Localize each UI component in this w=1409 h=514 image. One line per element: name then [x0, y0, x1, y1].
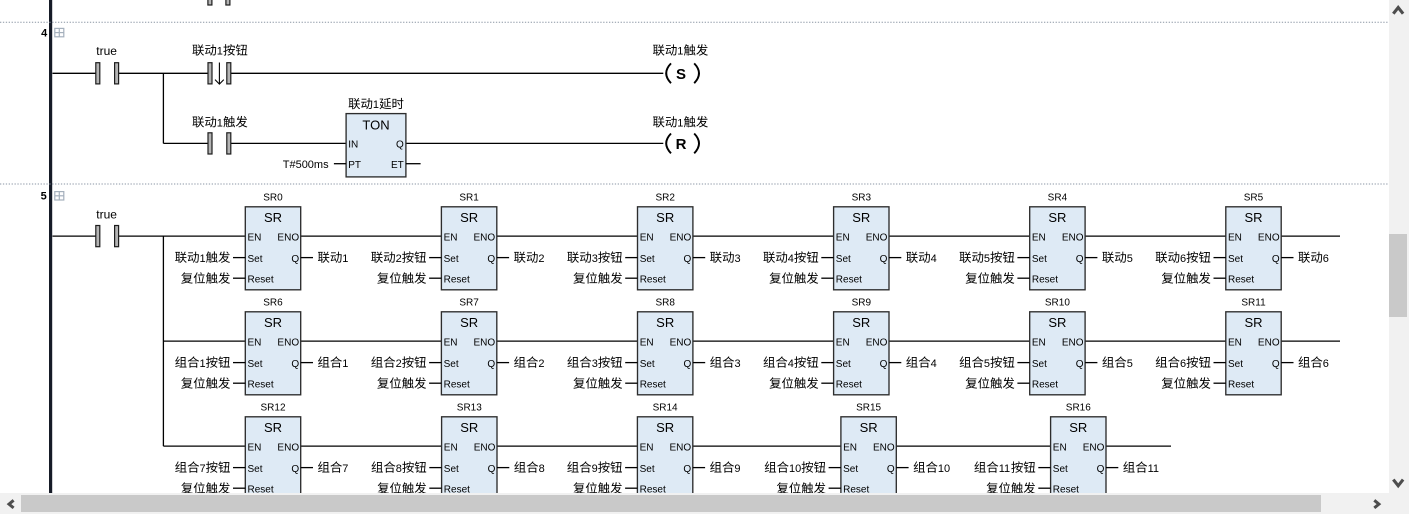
svg-text:Set: Set [248, 359, 263, 370]
svg-text:SR10: SR10 [1045, 298, 1070, 309]
svg-text:Set: Set [444, 359, 459, 370]
svg-text:Reset: Reset [1228, 380, 1254, 391]
svg-text:Q: Q [1272, 254, 1280, 265]
svg-text:Set: Set [1228, 254, 1243, 265]
svg-text:6: 6 [1323, 253, 1329, 265]
svg-text:Q: Q [291, 464, 299, 475]
svg-text:EN: EN [836, 232, 850, 243]
svg-text:5: 5 [984, 358, 990, 370]
svg-text:SR13: SR13 [457, 403, 482, 414]
svg-text:3: 3 [735, 253, 741, 265]
svg-text:ENO: ENO [866, 232, 888, 243]
svg-text:EN: EN [248, 337, 262, 348]
svg-text:4: 4 [41, 27, 48, 39]
svg-text:Q: Q [1272, 359, 1280, 370]
svg-text:2: 2 [538, 358, 544, 370]
svg-text:SR: SR [656, 315, 674, 330]
svg-text:2: 2 [538, 253, 544, 265]
svg-text:2: 2 [396, 253, 402, 265]
svg-text:Reset: Reset [1032, 380, 1058, 391]
svg-text:SR3: SR3 [852, 193, 872, 204]
svg-text:ENO: ENO [670, 232, 692, 243]
svg-text:SR: SR [264, 420, 282, 435]
svg-text:SR: SR [460, 420, 478, 435]
svg-text:Q: Q [487, 359, 495, 370]
svg-text:EN: EN [640, 442, 654, 453]
svg-text:SR: SR [860, 420, 878, 435]
svg-text:Reset: Reset [1032, 275, 1058, 286]
svg-text:TON: TON [362, 118, 389, 133]
svg-text:ENO: ENO [873, 442, 895, 453]
svg-text:SR: SR [1048, 315, 1066, 330]
svg-text:EN: EN [843, 442, 857, 453]
svg-text:Q: Q [684, 254, 692, 265]
svg-text:1: 1 [677, 117, 683, 129]
svg-text:T#500ms: T#500ms [283, 159, 329, 171]
svg-text:Set: Set [843, 464, 858, 475]
svg-text:1: 1 [217, 117, 223, 129]
svg-text:Reset: Reset [836, 380, 862, 391]
svg-text:Set: Set [248, 464, 263, 475]
svg-text:Reset: Reset [444, 380, 470, 391]
svg-text:11: 11 [999, 463, 1010, 475]
svg-text:SR: SR [1069, 420, 1087, 435]
svg-text:EN: EN [640, 232, 654, 243]
svg-text:Reset: Reset [640, 380, 666, 391]
svg-text:11: 11 [1148, 463, 1159, 475]
svg-text:Set: Set [1228, 359, 1243, 370]
svg-text:SR: SR [852, 315, 870, 330]
svg-text:EN: EN [444, 232, 458, 243]
svg-text:Reset: Reset [640, 275, 666, 286]
svg-text:ENO: ENO [277, 337, 299, 348]
svg-text:Q: Q [1076, 254, 1084, 265]
svg-text:SR: SR [264, 210, 282, 225]
svg-text:SR8: SR8 [655, 298, 675, 309]
svg-text:R: R [676, 136, 687, 153]
svg-text:1: 1 [342, 358, 348, 370]
svg-text:Q: Q [1076, 359, 1084, 370]
svg-text:EN: EN [1228, 337, 1242, 348]
svg-text:9: 9 [592, 463, 598, 475]
svg-text:8: 8 [539, 463, 545, 475]
svg-text:3: 3 [735, 358, 741, 370]
svg-text:ENO: ENO [1258, 232, 1280, 243]
svg-text:SR: SR [264, 315, 282, 330]
svg-text:EN: EN [444, 337, 458, 348]
svg-text:1: 1 [373, 99, 379, 111]
svg-text:EN: EN [248, 442, 262, 453]
svg-text:7: 7 [342, 463, 348, 475]
svg-text:EN: EN [1032, 232, 1046, 243]
svg-text:SR5: SR5 [1244, 193, 1264, 204]
svg-text:ENO: ENO [1258, 337, 1280, 348]
svg-text:4: 4 [931, 253, 937, 265]
svg-text:1: 1 [342, 253, 348, 265]
svg-text:SR15: SR15 [856, 403, 881, 414]
svg-text:EN: EN [1032, 337, 1046, 348]
svg-text:Q: Q [880, 254, 888, 265]
svg-text:EN: EN [640, 337, 654, 348]
svg-text:ENO: ENO [474, 442, 496, 453]
svg-text:SR1: SR1 [459, 193, 479, 204]
svg-text:Reset: Reset [444, 275, 470, 286]
svg-text:Set: Set [444, 254, 459, 265]
svg-text:ENO: ENO [1062, 232, 1084, 243]
svg-text:Q: Q [880, 359, 888, 370]
svg-text:true: true [96, 208, 117, 222]
svg-text:SR: SR [852, 210, 870, 225]
svg-text:Q: Q [887, 464, 895, 475]
svg-text:SR: SR [460, 210, 478, 225]
svg-text:5: 5 [41, 190, 47, 202]
svg-text:EN: EN [1053, 442, 1067, 453]
svg-text:ENO: ENO [866, 337, 888, 348]
svg-text:Set: Set [836, 359, 851, 370]
svg-text:3: 3 [592, 358, 598, 370]
svg-text:3: 3 [592, 253, 598, 265]
svg-text:Q: Q [1097, 464, 1105, 475]
svg-text:1: 1 [200, 253, 206, 265]
svg-text:SR12: SR12 [260, 403, 285, 414]
svg-text:4: 4 [788, 253, 794, 265]
svg-text:PT: PT [348, 160, 361, 171]
svg-text:SR: SR [1048, 210, 1066, 225]
svg-text:6: 6 [1323, 358, 1329, 370]
svg-text:SR16: SR16 [1066, 403, 1091, 414]
svg-text:5: 5 [1127, 253, 1133, 265]
svg-text:Reset: Reset [836, 275, 862, 286]
svg-text:5: 5 [984, 253, 990, 265]
svg-text:Reset: Reset [1228, 275, 1254, 286]
svg-text:ENO: ENO [474, 337, 496, 348]
svg-text:SR6: SR6 [263, 298, 283, 309]
svg-text:SR0: SR0 [263, 193, 283, 204]
svg-text:Set: Set [444, 464, 459, 475]
svg-text:Q: Q [291, 359, 299, 370]
svg-text:9: 9 [734, 463, 740, 475]
svg-text:Set: Set [640, 464, 655, 475]
svg-text:ENO: ENO [277, 442, 299, 453]
svg-text:Set: Set [1032, 359, 1047, 370]
svg-text:ENO: ENO [670, 442, 692, 453]
svg-text:Set: Set [1053, 464, 1068, 475]
svg-text:8: 8 [396, 463, 402, 475]
svg-text:S: S [676, 66, 686, 83]
svg-text:ENO: ENO [1083, 442, 1105, 453]
svg-text:SR2: SR2 [655, 193, 675, 204]
svg-text:ENO: ENO [670, 337, 692, 348]
svg-text:true: true [96, 44, 117, 58]
svg-text:EN: EN [444, 442, 458, 453]
svg-text:SR14: SR14 [653, 403, 678, 414]
svg-text:6: 6 [1180, 358, 1186, 370]
svg-text:Reset: Reset [248, 380, 274, 391]
svg-text:EN: EN [836, 337, 850, 348]
svg-text:Q: Q [291, 254, 299, 265]
svg-text:Set: Set [248, 254, 263, 265]
svg-text:ENO: ENO [277, 232, 299, 243]
svg-text:Set: Set [640, 254, 655, 265]
svg-text:SR9: SR9 [852, 298, 872, 309]
svg-text:Set: Set [640, 359, 655, 370]
svg-text:SR4: SR4 [1048, 193, 1068, 204]
svg-text:Set: Set [1032, 254, 1047, 265]
svg-text:SR: SR [656, 420, 674, 435]
svg-text:Set: Set [836, 254, 851, 265]
svg-text:Q: Q [683, 464, 691, 475]
svg-text:Q: Q [488, 464, 496, 475]
svg-text:1: 1 [200, 358, 206, 370]
svg-text:10: 10 [938, 463, 950, 475]
svg-text:4: 4 [788, 358, 794, 370]
svg-text:SR: SR [460, 315, 478, 330]
svg-text:Q: Q [684, 359, 692, 370]
svg-text:ENO: ENO [1062, 337, 1084, 348]
svg-text:ENO: ENO [474, 232, 496, 243]
svg-text:1: 1 [677, 46, 683, 58]
svg-text:SR7: SR7 [459, 298, 479, 309]
svg-text:Q: Q [396, 140, 404, 151]
svg-text:EN: EN [1228, 232, 1242, 243]
svg-text:Q: Q [487, 254, 495, 265]
svg-text:7: 7 [200, 463, 206, 475]
svg-text:1: 1 [217, 46, 223, 58]
svg-text:10: 10 [789, 463, 801, 475]
svg-text:6: 6 [1180, 253, 1186, 265]
svg-text:5: 5 [1127, 358, 1133, 370]
svg-text:Reset: Reset [248, 275, 274, 286]
svg-text:EN: EN [248, 232, 262, 243]
svg-text:SR: SR [656, 210, 674, 225]
svg-text:SR: SR [1244, 210, 1262, 225]
svg-text:SR: SR [1244, 315, 1262, 330]
svg-text:IN: IN [348, 140, 358, 151]
svg-text:SR11: SR11 [1241, 298, 1266, 309]
svg-text:4: 4 [931, 358, 937, 370]
svg-text:ET: ET [391, 160, 404, 171]
svg-text:2: 2 [396, 358, 402, 370]
